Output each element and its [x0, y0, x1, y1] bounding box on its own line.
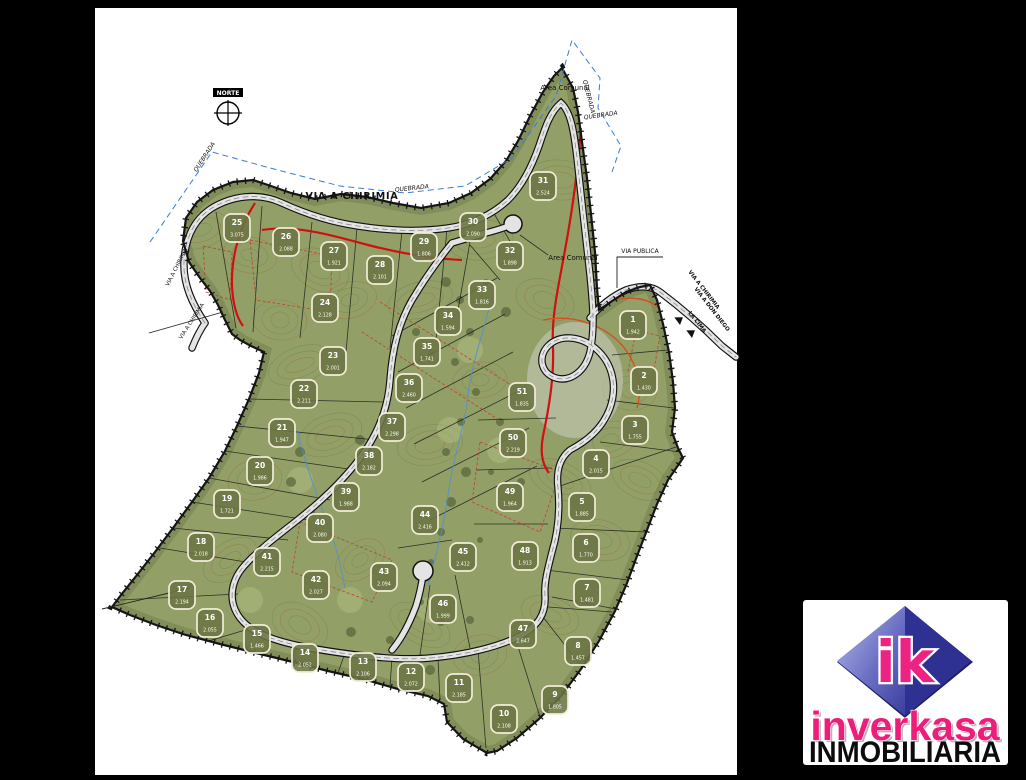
lot-label-37: 372.298: [379, 413, 405, 441]
lot-number: 38: [364, 451, 374, 460]
lot-area: 2.460: [402, 393, 416, 399]
lot-number: 18: [196, 537, 206, 546]
lot-label-31: 312.524: [530, 172, 556, 200]
lot-area: 1.741: [420, 357, 434, 363]
lot-area: 2.018: [194, 552, 208, 558]
area-comunal-top-label: Area Comunal: [540, 84, 589, 92]
lot-number: 47: [518, 624, 528, 633]
lot-area: 2.055: [203, 628, 217, 634]
lot-label-21: 211.947: [269, 419, 295, 447]
lot-number: 28: [375, 260, 385, 269]
lot-label-32: 321.898: [497, 242, 523, 270]
lot-number: 3: [632, 420, 637, 429]
lot-area: 3.075: [230, 233, 244, 239]
lot-number: 20: [255, 461, 265, 470]
lot-label-15: 151.466: [244, 625, 270, 653]
via-chirimia-top-label: VIA A CHIRIMIA: [305, 191, 398, 202]
lot-label-13: 132.106: [350, 653, 376, 681]
lot-label-24: 242.128: [312, 294, 338, 322]
lot-area: 2.185: [452, 693, 466, 699]
lot-label-29: 291.806: [411, 233, 437, 261]
lot-area: 2.524: [536, 191, 550, 197]
lot-number: 31: [538, 176, 548, 185]
lot-number: 44: [420, 510, 430, 519]
lot-area: 1.806: [417, 252, 431, 258]
lot-label-35: 351.741: [414, 338, 440, 366]
lot-number: 7: [584, 583, 589, 592]
lot-label-30: 302.090: [460, 213, 486, 241]
logo-subtitle: INMOBILIARIA: [809, 736, 1001, 765]
lot-label-46: 461.999: [430, 595, 456, 623]
logo-monogram: ik: [876, 628, 936, 696]
lot-label-25: 253.075: [224, 214, 250, 242]
lot-area: 1.457: [571, 656, 585, 662]
lot-number: 13: [358, 657, 368, 666]
lot-label-50: 502.219: [500, 429, 526, 457]
lot-area: 1.986: [253, 476, 267, 482]
lot-number: 15: [252, 629, 262, 638]
lot-label-39: 391.988: [333, 483, 359, 511]
lot-area: 2.182: [362, 466, 376, 472]
lot-label-3: 31.755: [622, 416, 648, 444]
lot-number: 8: [575, 641, 580, 650]
lot-number: 16: [205, 613, 215, 622]
lot-label-7: 71.481: [574, 579, 600, 607]
lot-number: 24: [320, 298, 330, 307]
lot-number: 12: [406, 667, 416, 676]
lot-label-8: 81.457: [565, 637, 591, 665]
lot-area: 2.298: [385, 432, 399, 438]
lot-label-45: 452.412: [450, 543, 476, 571]
lot-area: 2.108: [497, 724, 511, 730]
lot-label-4: 42.015: [583, 450, 609, 478]
lot-number: 29: [419, 237, 429, 246]
lot-number: 6: [583, 538, 588, 547]
lot-area: 2.052: [298, 663, 312, 669]
lot-number: 42: [311, 575, 321, 584]
lot-label-43: 432.094: [371, 563, 397, 591]
lot-area: 1.481: [580, 598, 594, 604]
lot-number: 39: [341, 487, 351, 496]
lot-area: 2.080: [313, 533, 327, 539]
lot-area: 2.215: [260, 567, 274, 573]
lot-number: 25: [232, 218, 242, 227]
lot-area: 1.721: [220, 509, 234, 515]
lot-label-6: 61.770: [573, 534, 599, 562]
lot-number: 51: [517, 387, 527, 396]
lot-label-27: 271.921: [321, 242, 347, 270]
lot-area: 1.988: [339, 502, 353, 508]
lot-number: 40: [315, 518, 325, 527]
lot-label-22: 222.211: [291, 380, 317, 408]
lot-number: 34: [443, 311, 453, 320]
lot-area: 2.128: [318, 313, 332, 319]
lot-number: 2: [641, 371, 646, 380]
lot-label-18: 182.018: [188, 533, 214, 561]
lot-area: 1.816: [475, 300, 489, 306]
lot-label-14: 142.052: [292, 644, 318, 672]
lot-label-42: 422.027: [303, 571, 329, 599]
lot-label-38: 382.182: [356, 447, 382, 475]
lot-number: 4: [593, 454, 598, 463]
lot-area: 2.647: [516, 639, 530, 645]
lot-area: 1.594: [441, 326, 455, 332]
lot-number: 46: [438, 599, 448, 608]
lot-number: 11: [454, 678, 464, 687]
lot-label-16: 162.055: [197, 609, 223, 637]
lot-label-36: 362.460: [396, 374, 422, 402]
lot-label-47: 472.647: [510, 620, 536, 648]
lot-label-33: 331.816: [469, 281, 495, 309]
via-publica-label: VIA PUBLICA: [621, 248, 659, 255]
lot-number: 35: [422, 342, 432, 351]
lot-area: 2.094: [377, 582, 391, 588]
area-comunal-right-label: Area Comunal: [548, 254, 597, 262]
lot-area: 1.835: [515, 402, 529, 408]
lot-number: 50: [508, 433, 518, 442]
norte-label: NORTE: [217, 90, 240, 97]
lot-label-1: 11.942: [620, 311, 646, 339]
lot-label-28: 282.101: [367, 256, 393, 284]
lot-area: 2.090: [466, 232, 480, 238]
lot-area: 2.211: [297, 399, 311, 405]
lot-area: 1.770: [579, 553, 593, 559]
lot-label-40: 402.080: [307, 514, 333, 542]
lot-number: 43: [379, 567, 389, 576]
lot-label-9: 91.805: [542, 686, 568, 714]
lot-label-12: 122.072: [398, 663, 424, 691]
lot-area: 2.088: [279, 247, 293, 253]
lot-number: 21: [277, 423, 287, 432]
lot-number: 49: [505, 487, 515, 496]
lot-number: 36: [404, 378, 414, 387]
lot-number: 17: [177, 585, 187, 594]
lot-area: 1.913: [518, 561, 532, 567]
lot-number: 33: [477, 285, 487, 294]
lot-label-44: 442.416: [412, 506, 438, 534]
lot-label-34: 341.594: [435, 307, 461, 335]
lot-number: 27: [329, 246, 339, 255]
lot-number: 32: [505, 246, 515, 255]
lot-number: 23: [328, 351, 338, 360]
lot-label-49: 491.964: [497, 483, 523, 511]
lot-label-51: 511.835: [509, 383, 535, 411]
lot-number: 5: [579, 497, 584, 506]
lot-number: 37: [387, 417, 397, 426]
lot-label-23: 232.001: [320, 347, 346, 375]
lot-number: 1: [630, 315, 635, 324]
lot-number: 45: [458, 547, 468, 556]
lot-number: 9: [552, 690, 557, 699]
lot-label-10: 102.108: [491, 705, 517, 733]
lot-area: 1.947: [275, 438, 289, 444]
lot-area: 2.001: [326, 366, 340, 372]
lot-area: 1.964: [503, 502, 517, 508]
lot-label-19: 191.721: [214, 490, 240, 518]
lot-area: 2.015: [589, 469, 603, 475]
lot-area: 2.101: [373, 275, 387, 281]
screenshot-stage: NORTE VIA A CHIRIMIA QUEBRADA QUEBRADA Q…: [0, 0, 1026, 780]
lot-area: 2.219: [506, 448, 520, 454]
lot-area: 2.027: [309, 590, 323, 596]
lot-label-41: 412.215: [254, 548, 280, 576]
lot-area: 2.194: [175, 600, 189, 606]
lot-label-17: 172.194: [169, 581, 195, 609]
lot-label-2: 21.430: [631, 367, 657, 395]
lot-area: 1.999: [436, 614, 450, 620]
lot-area: 1.430: [637, 386, 651, 392]
lot-number: 26: [281, 232, 291, 241]
lot-label-26: 262.088: [273, 228, 299, 256]
lot-area: 1.898: [503, 261, 517, 267]
lot-number: 10: [499, 709, 509, 718]
inverkasa-logo: ik inverkasa inverkasa INMOBILIARIA: [803, 600, 1008, 765]
lot-number: 41: [262, 552, 272, 561]
lot-area: 1.921: [327, 261, 341, 267]
lot-area: 2.416: [418, 525, 432, 531]
lot-label-5: 51.885: [569, 493, 595, 521]
lot-area: 2.072: [404, 682, 418, 688]
lot-area: 1.755: [628, 435, 642, 441]
lot-area: 1.805: [548, 705, 562, 711]
lot-area: 1.885: [575, 512, 589, 518]
lot-number: 14: [300, 648, 310, 657]
lot-label-48: 481.913: [512, 542, 538, 570]
lot-area: 2.412: [456, 562, 470, 568]
lot-area: 1.942: [626, 330, 640, 336]
lot-number: 22: [299, 384, 309, 393]
lot-label-11: 112.185: [446, 674, 472, 702]
lot-number: 19: [222, 494, 232, 503]
lot-number: 48: [520, 546, 530, 555]
lot-number: 30: [468, 217, 478, 226]
lot-area: 1.466: [250, 644, 264, 650]
lot-area: 2.106: [356, 672, 370, 678]
lot-label-20: 201.986: [247, 457, 273, 485]
